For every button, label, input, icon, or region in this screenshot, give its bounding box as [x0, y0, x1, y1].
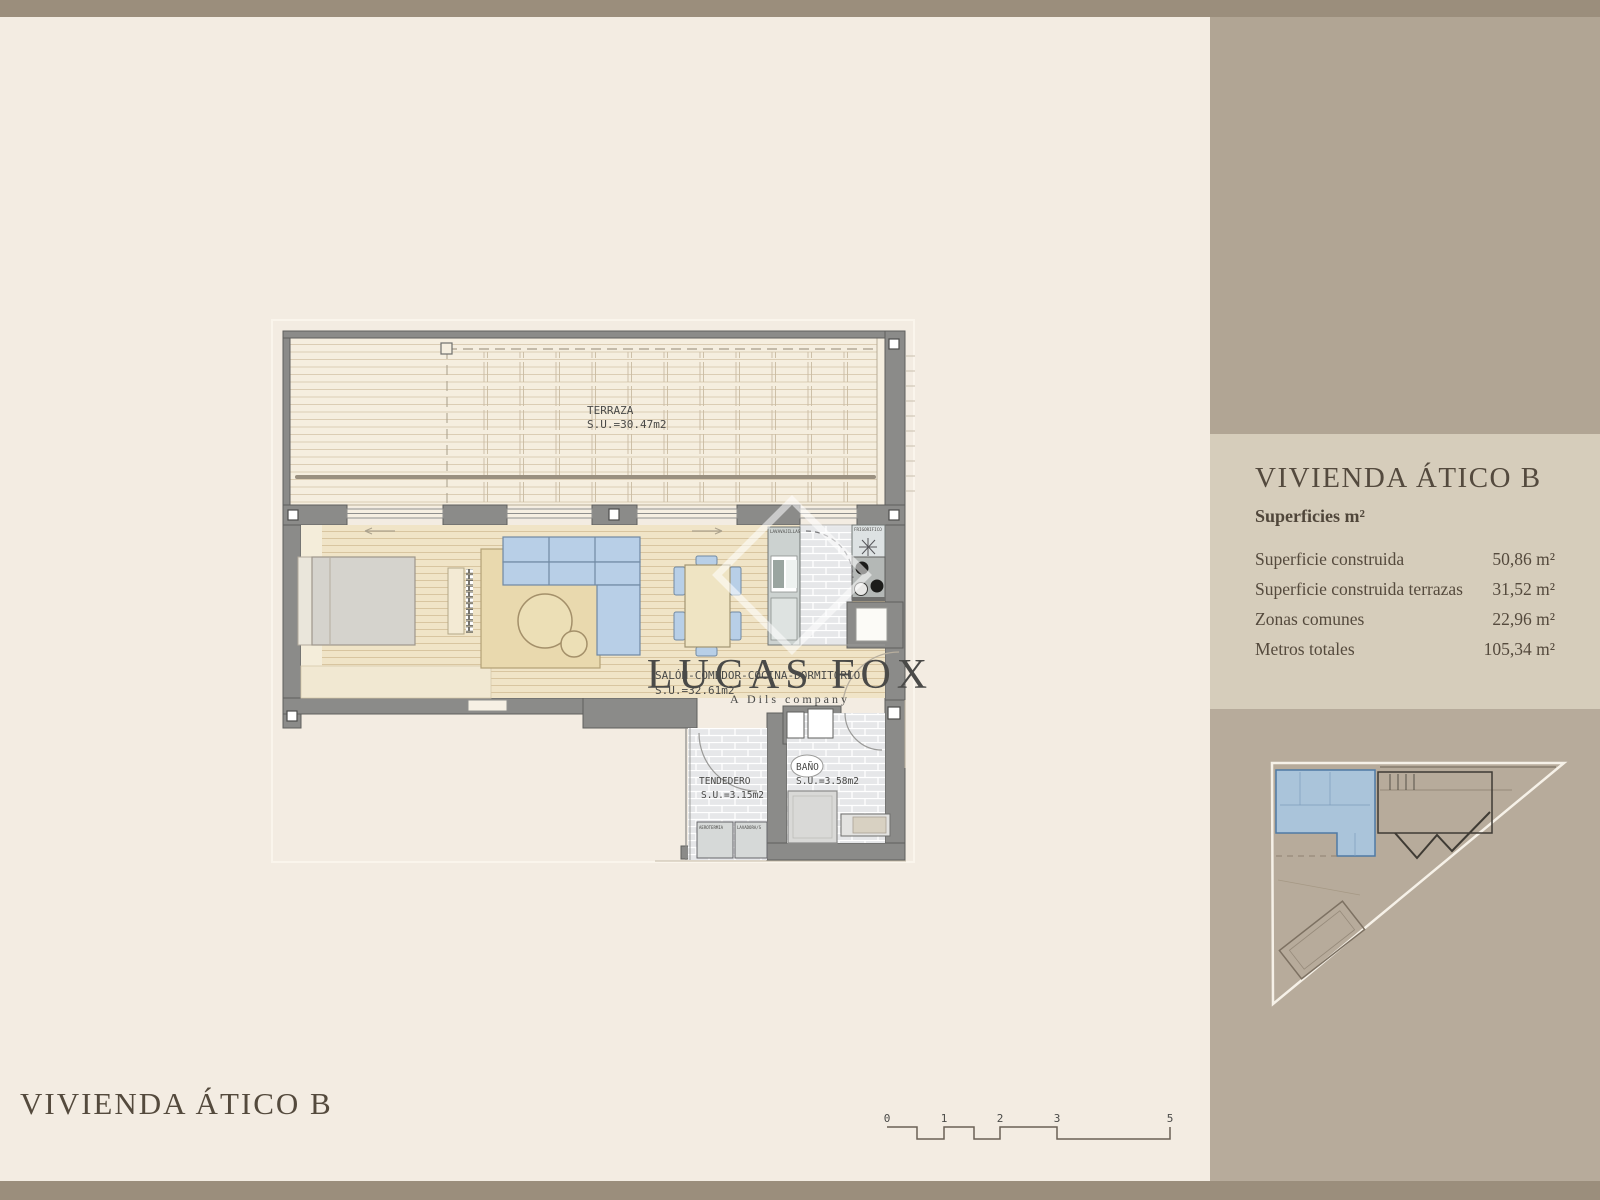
site-plan: [1240, 745, 1580, 1015]
chair: [696, 556, 717, 565]
row-label: Superficie construida: [1255, 544, 1404, 574]
page-title: VIVIENDA ÁTICO B: [20, 1086, 333, 1122]
row-label: Metros totales: [1255, 634, 1355, 664]
pool-outline: [1279, 901, 1364, 979]
washer-label: LAVADORA/S: [737, 825, 762, 830]
table-row: Superficie construida terrazas 31,52 m²: [1255, 574, 1555, 604]
terrace-area-label: S.U.=30.47m2: [587, 418, 666, 431]
tendedero-area-label: S.U.=3.15m2: [701, 790, 764, 801]
scale-5: 5: [1167, 1112, 1174, 1125]
scale-0: 0: [884, 1112, 891, 1125]
fridge-label: FRIGORIFICO: [854, 527, 882, 532]
scale-1: 1: [941, 1112, 948, 1125]
dresser: [448, 568, 473, 634]
round-side-table: [561, 631, 587, 657]
bathroom-area-label: S.U.=3.58m2: [796, 776, 859, 787]
row-label: Zonas comunes: [1255, 604, 1364, 634]
row-label: Superficie construida terrazas: [1255, 574, 1463, 604]
highlighted-unit: [1276, 770, 1375, 856]
watermark-subtext: A Dils company: [730, 692, 850, 706]
scale-bar: 0 1 2 3 5: [860, 1085, 1190, 1155]
table-row: Zonas comunes 22,96 m²: [1255, 604, 1555, 634]
scale-3: 3: [1054, 1112, 1061, 1125]
surfaces-heading: Superficies m²: [1255, 506, 1365, 527]
row-value: 22,96 m²: [1492, 604, 1555, 634]
unit-title: VIVIENDA ÁTICO B: [1255, 462, 1542, 495]
shower: [788, 791, 837, 843]
sidebar-info-panel: VIVIENDA ÁTICO B Superficies m² Superfic…: [1210, 434, 1600, 709]
row-value: 31,52 m²: [1492, 574, 1555, 604]
terrace-label: TERRAZA: [587, 404, 634, 417]
footer-bar: [0, 1181, 1600, 1200]
row-value: 50,86 m²: [1492, 544, 1555, 574]
chair: [674, 612, 685, 640]
aerotermia-label: AEROTERMIA: [699, 825, 724, 830]
bed: [298, 557, 415, 645]
sidebar-upper-block: [1210, 17, 1600, 434]
table-row: Metros totales 105,34 m²: [1255, 634, 1555, 664]
tendedero-label: TENDEDERO: [699, 776, 751, 787]
top-border-strip: [0, 0, 1600, 17]
neighbor-unit-outline: [1378, 772, 1492, 833]
bathroom-label: BAÑO: [796, 762, 819, 773]
table-row: Superficie construida 50,86 m²: [1255, 544, 1555, 574]
terrace-room: TERRAZA S.U.=30.47m2: [283, 331, 905, 507]
kitchen-sink: [856, 608, 887, 641]
floor-plan: TERRAZA S.U.=30.47m2: [260, 300, 940, 880]
surfaces-table: Superficie construida 50,86 m² Superfici…: [1255, 544, 1555, 664]
dishwasher-label: LAVAVAJILLAS: [770, 529, 801, 534]
page-background: TERRAZA S.U.=30.47m2: [0, 0, 1600, 1200]
chair: [674, 567, 685, 595]
chair: [730, 612, 741, 640]
row-value: 105,34 m²: [1484, 634, 1555, 664]
scale-2: 2: [997, 1112, 1004, 1125]
